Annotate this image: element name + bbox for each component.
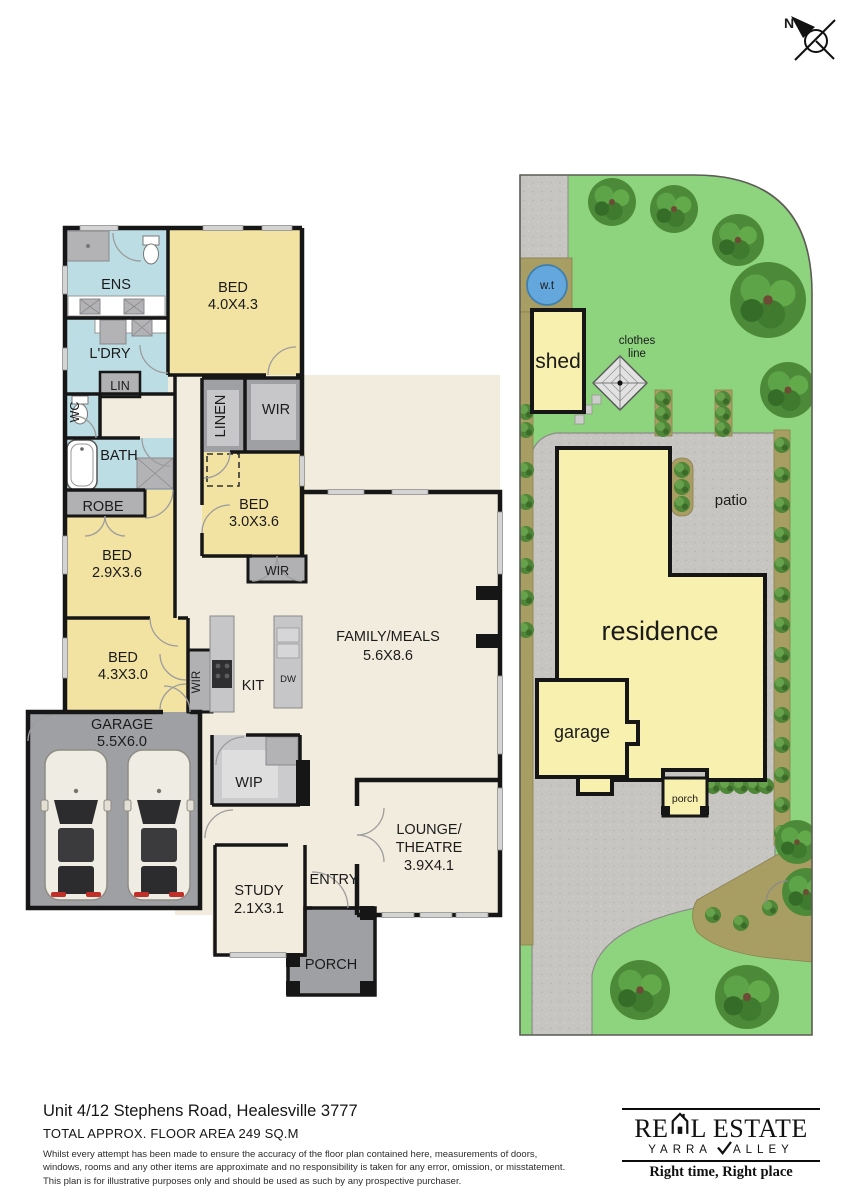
label-study-dims: 2.1X3.1 bbox=[234, 901, 284, 917]
logo-region-part1: YARRA bbox=[648, 1144, 712, 1156]
logo-region-part2: ALLEY bbox=[733, 1144, 794, 1156]
label-linen: LINEN bbox=[213, 395, 229, 438]
label-bed2-dims: 2.9X3.6 bbox=[92, 565, 142, 581]
label-ldry: L'DRY bbox=[89, 346, 131, 362]
label-bed1: BED bbox=[218, 280, 248, 296]
label-bed3-dims: 3.0X3.6 bbox=[229, 514, 279, 530]
north-arrow-icon bbox=[791, 16, 815, 38]
clothes-line-label-2: line bbox=[628, 348, 646, 360]
residence-label: residence bbox=[601, 616, 718, 646]
disclaimer-line-3: This plan is for illustrative purposes o… bbox=[43, 1175, 603, 1188]
clothes-line-label-1: clothes bbox=[619, 335, 656, 347]
plan-drawing: N bbox=[0, 0, 849, 1200]
label-bed4-dims: 4.3X3.0 bbox=[98, 667, 148, 683]
label-lounge-2: THEATRE bbox=[396, 840, 463, 856]
property-address: Unit 4/12 Stephens Road, Healesville 377… bbox=[43, 1102, 603, 1121]
disclaimer-line-1: Whilst every attempt has been made to en… bbox=[43, 1148, 603, 1161]
label-bath: BATH bbox=[100, 448, 138, 464]
site-porch-label: porch bbox=[672, 793, 698, 805]
water-tank-label: w.t bbox=[539, 280, 555, 292]
logo-rule-top bbox=[622, 1108, 820, 1110]
label-bed1-dims: 4.0X4.3 bbox=[208, 297, 258, 313]
label-dw: DW bbox=[280, 674, 296, 685]
label-porch: PORCH bbox=[305, 957, 357, 973]
label-wir2: WIR bbox=[265, 564, 289, 578]
agency-logo: RE L ESTATE YARRA ALLEY Right time, Righ… bbox=[622, 1108, 820, 1181]
car-2 bbox=[124, 750, 194, 900]
footer: Unit 4/12 Stephens Road, Healesville 377… bbox=[43, 1102, 603, 1188]
label-wc: WC bbox=[68, 402, 82, 423]
logo-region: YARRA ALLEY bbox=[622, 1141, 820, 1158]
label-lin: LIN bbox=[110, 379, 129, 393]
logo-rule-bottom bbox=[622, 1160, 820, 1162]
disclaimer: Whilst every attempt has been made to en… bbox=[43, 1148, 603, 1188]
label-bed3: BED bbox=[239, 497, 269, 513]
label-lounge-dims: 3.9X4.1 bbox=[404, 858, 454, 874]
label-robe: ROBE bbox=[82, 499, 123, 515]
north-compass: N bbox=[784, 15, 835, 60]
label-lounge-1: LOUNGE/ bbox=[396, 822, 462, 838]
label-wir3: WIR bbox=[191, 671, 203, 693]
label-study: STUDY bbox=[234, 883, 283, 899]
site-garage-label: garage bbox=[554, 722, 610, 742]
label-family: FAMILY/MEALS bbox=[336, 629, 440, 645]
label-kit: KIT bbox=[242, 678, 265, 694]
label-bed4: BED bbox=[108, 650, 138, 666]
logo-brand-part1: RE bbox=[634, 1115, 668, 1142]
logo-tagline: Right time, Right place bbox=[622, 1164, 820, 1181]
label-family-dims: 5.6X8.6 bbox=[363, 648, 413, 664]
patio-label: patio bbox=[715, 492, 748, 509]
shed-label: shed bbox=[535, 350, 581, 373]
concrete-path-top bbox=[520, 175, 568, 258]
floor-plan: ENS BED 4.0X4.3 L'DRY LIN WC BATH ROBE L… bbox=[28, 226, 503, 996]
car-1 bbox=[41, 750, 111, 900]
label-entry: ENTRY bbox=[310, 872, 359, 888]
label-garage: GARAGE bbox=[91, 717, 153, 733]
label-wir1: WIR bbox=[262, 402, 290, 418]
logo-brand-part2: L ESTATE bbox=[691, 1115, 808, 1142]
label-wip: WIP bbox=[235, 775, 262, 791]
floorplan-sheet: N bbox=[0, 0, 849, 1200]
disclaimer-line-2: windows, rooms and any other items are a… bbox=[43, 1161, 603, 1174]
house-icon bbox=[670, 1111, 690, 1140]
tick-icon bbox=[717, 1141, 732, 1158]
floor-area-total: TOTAL APPROX. FLOOR AREA 249 SQ.M bbox=[43, 1126, 603, 1141]
logo-brand: RE L ESTATE bbox=[622, 1111, 820, 1142]
site-plan: w.t shed clothes line bbox=[518, 175, 830, 1035]
label-ens: ENS bbox=[101, 277, 131, 293]
compass-cross-line2 bbox=[816, 41, 834, 59]
label-garage-dims: 5.5X6.0 bbox=[97, 734, 147, 750]
label-bed2: BED bbox=[102, 548, 132, 564]
